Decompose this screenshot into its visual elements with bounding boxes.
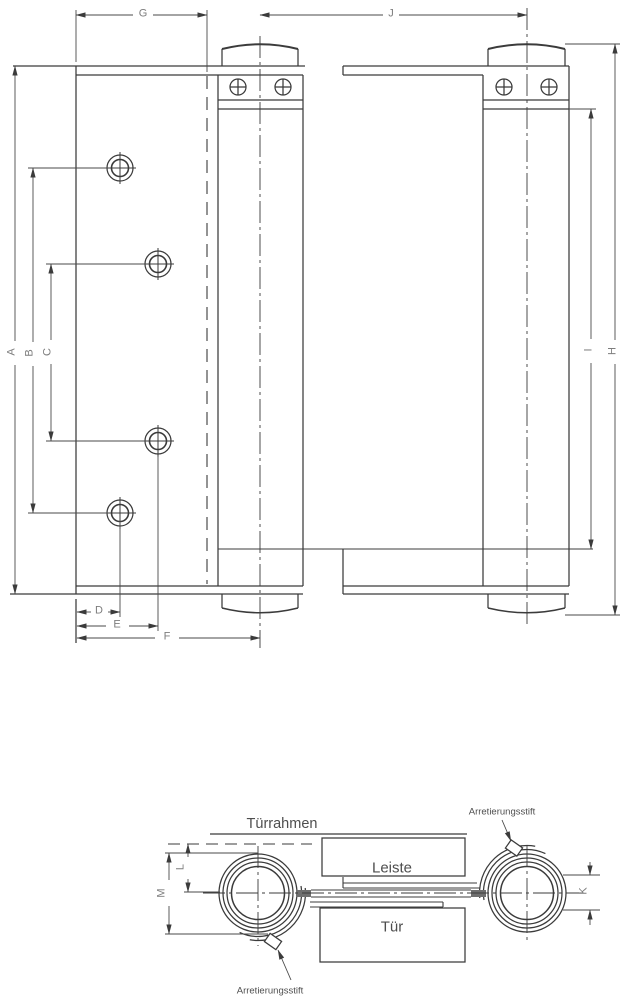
dim-label-g: G xyxy=(139,9,148,20)
dim-label-d: D xyxy=(95,606,103,617)
dim-label-f: F xyxy=(164,632,171,643)
spring-bar-end-right xyxy=(471,890,486,897)
label-door: Tür xyxy=(381,920,404,935)
dim-label-j: J xyxy=(388,9,394,20)
front-view-dimensions xyxy=(15,10,620,638)
screw-holes xyxy=(104,152,174,529)
front-view xyxy=(10,8,620,648)
leader-lines xyxy=(278,820,511,980)
spring-bar-end-left xyxy=(296,890,311,897)
right-spring-coil xyxy=(480,840,566,932)
dim-label-c: C xyxy=(43,348,54,356)
dim-label-h: H xyxy=(608,347,619,355)
dim-label-a: A xyxy=(7,348,18,355)
hinge-technical-drawing: G J A B C D E F I H M L K Türrahmen Leis… xyxy=(0,0,620,1000)
dim-label-i: I xyxy=(584,348,595,351)
label-strip: Leiste xyxy=(372,861,412,876)
left-spring-coil xyxy=(219,854,305,950)
dim-label-l: L xyxy=(176,864,187,870)
label-locking-pin-top: Arretierungsstift xyxy=(469,807,536,817)
dim-label-m: M xyxy=(157,888,168,897)
hinge-drawing-svg xyxy=(0,0,620,1000)
dim-label-b: B xyxy=(25,349,36,356)
dim-label-e: E xyxy=(113,620,120,631)
dim-label-k: K xyxy=(579,887,590,894)
hinge-bars xyxy=(310,877,480,907)
label-door-frame: Türrahmen xyxy=(247,817,318,832)
set-screw-icons xyxy=(230,79,557,95)
top-view xyxy=(165,820,600,980)
label-locking-pin-bottom: Arretierungsstift xyxy=(237,986,304,996)
